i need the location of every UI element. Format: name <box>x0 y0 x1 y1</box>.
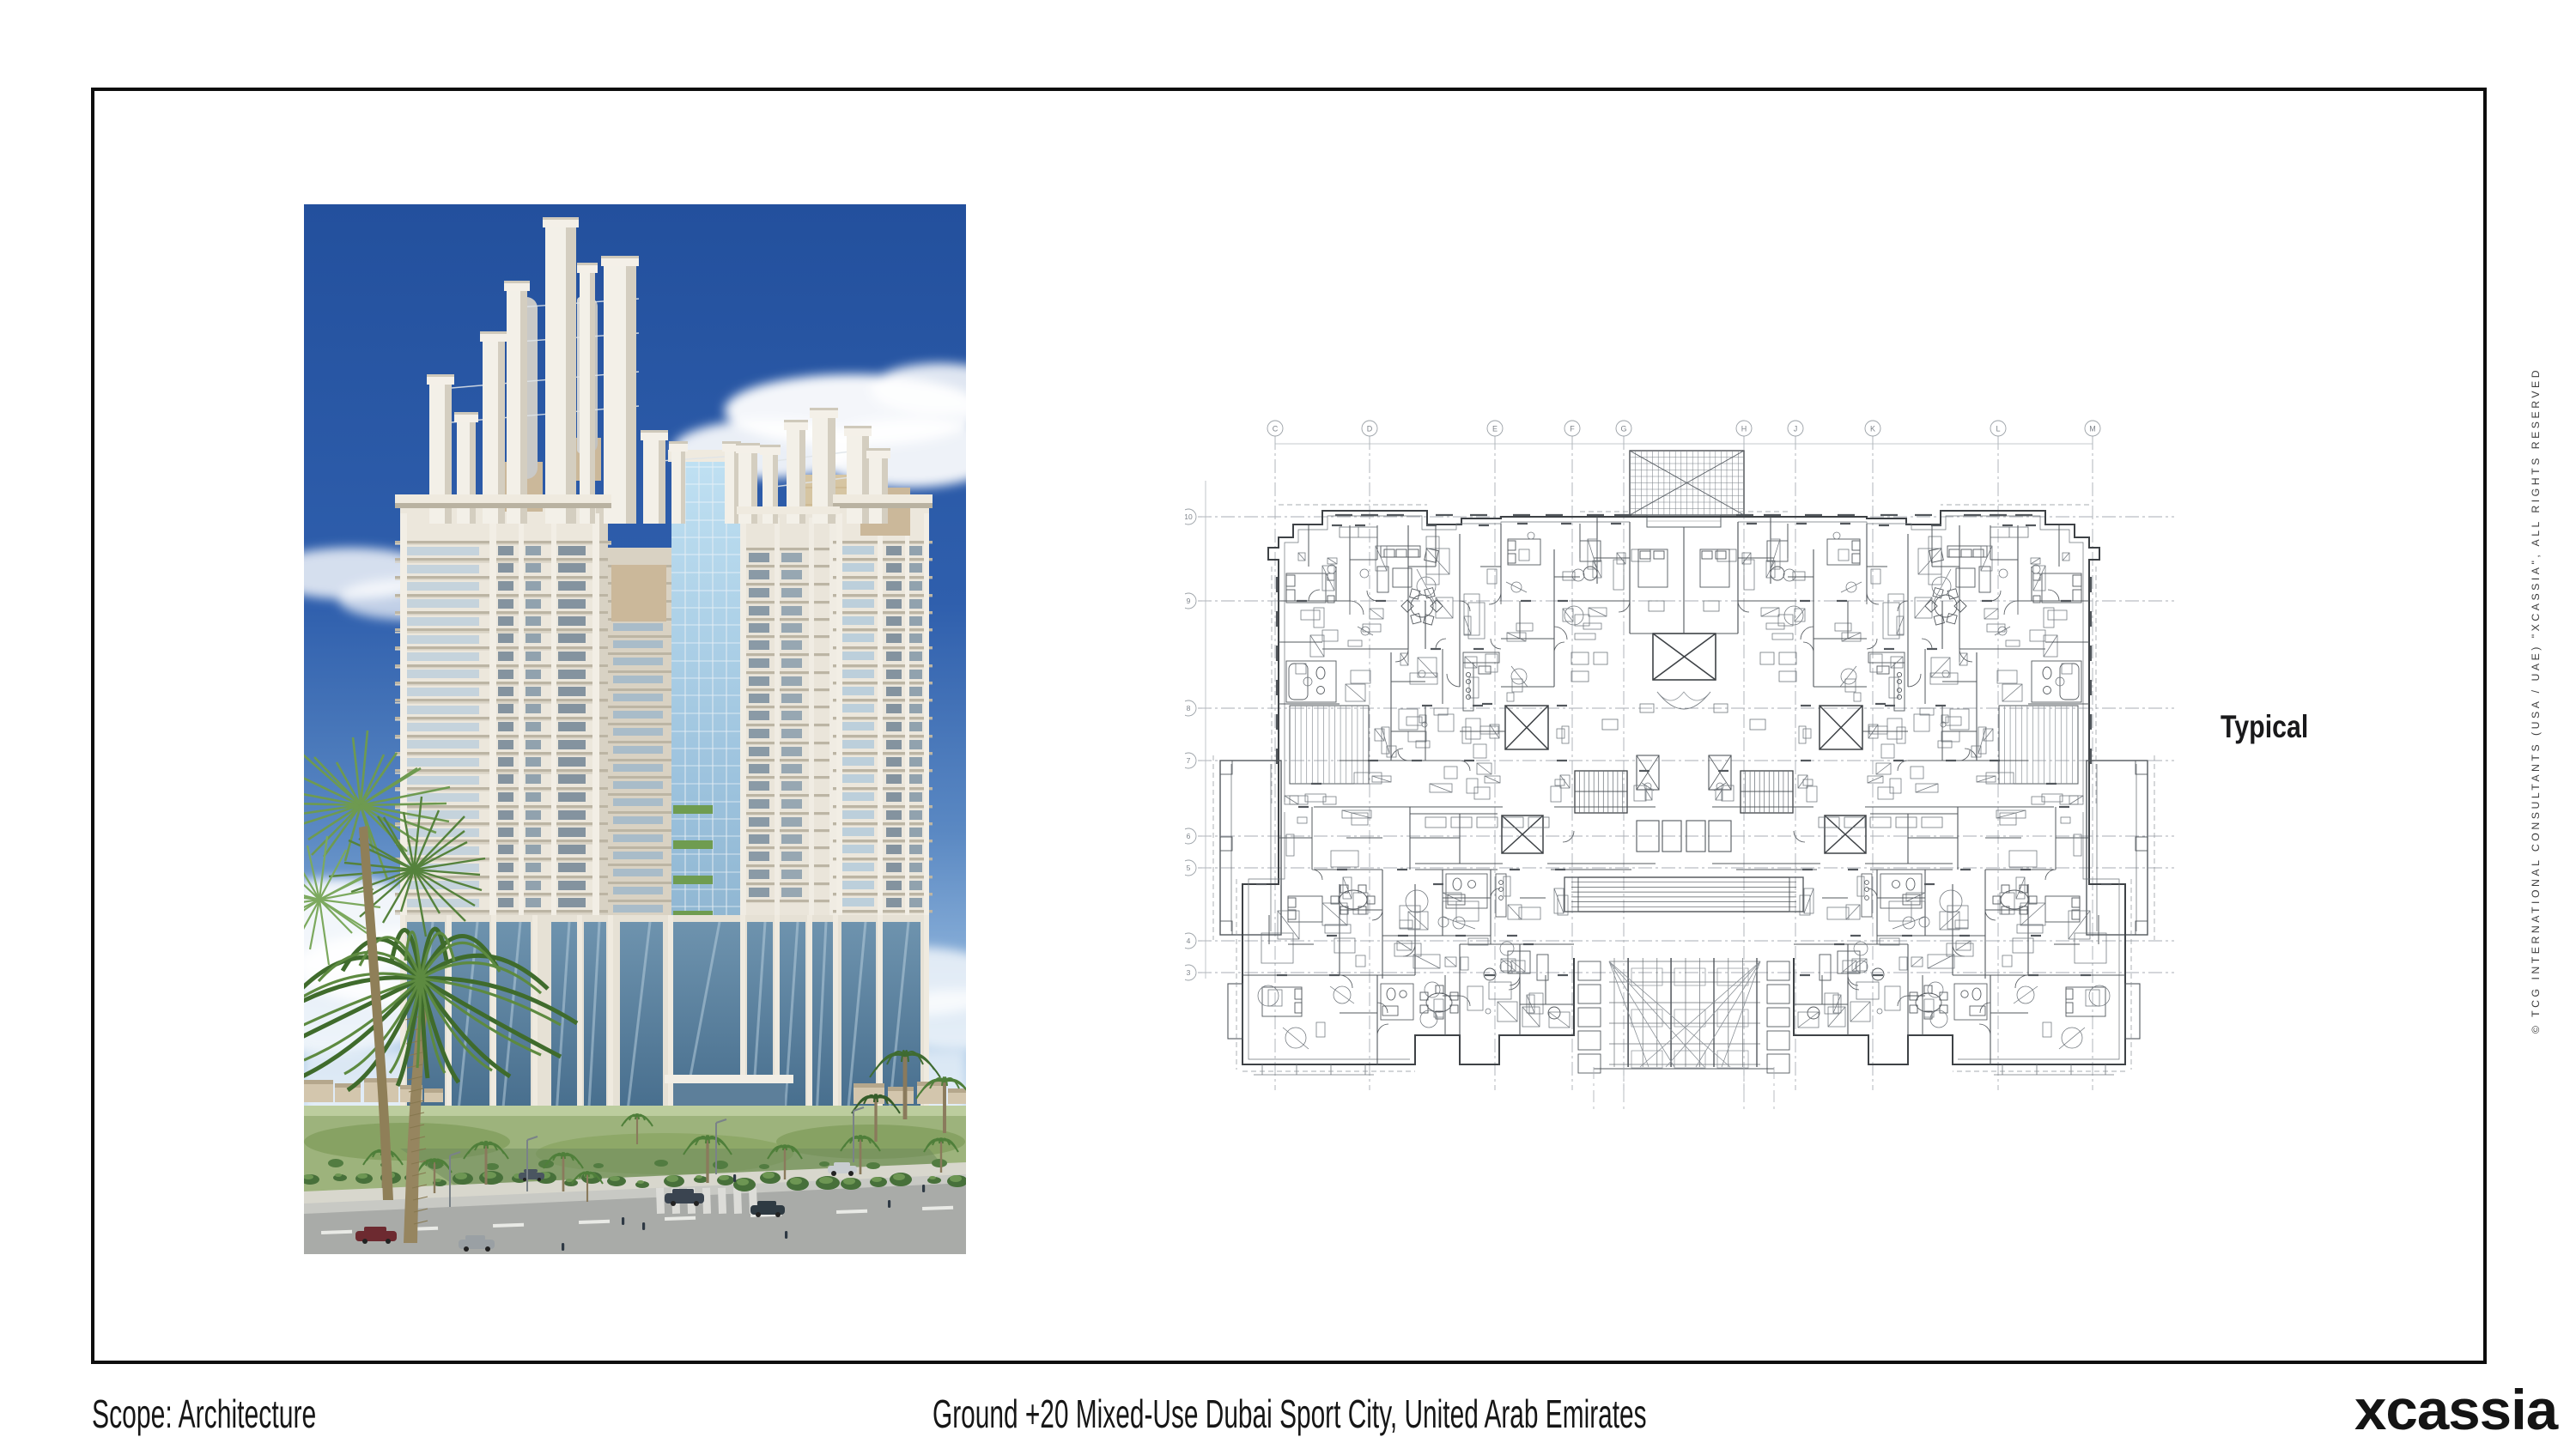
svg-text:L: L <box>1996 425 2000 433</box>
svg-text:G: G <box>1620 425 1626 433</box>
svg-text:10: 10 <box>1185 512 1193 521</box>
svg-text:4: 4 <box>1187 937 1191 945</box>
svg-text:M: M <box>2089 425 2096 433</box>
svg-text:K: K <box>1870 425 1875 433</box>
svg-text:H: H <box>1741 425 1747 433</box>
svg-text:6: 6 <box>1187 832 1191 840</box>
svg-text:C: C <box>1273 425 1279 433</box>
svg-text:D: D <box>1367 425 1373 433</box>
svg-text:5: 5 <box>1187 864 1191 872</box>
svg-text:E: E <box>1492 425 1498 433</box>
svg-text:9: 9 <box>1187 597 1191 605</box>
svg-text:8: 8 <box>1187 704 1191 712</box>
svg-text:J: J <box>1794 425 1798 433</box>
svg-text:3: 3 <box>1187 968 1191 977</box>
svg-text:7: 7 <box>1187 756 1191 765</box>
svg-text:F: F <box>1570 425 1575 433</box>
